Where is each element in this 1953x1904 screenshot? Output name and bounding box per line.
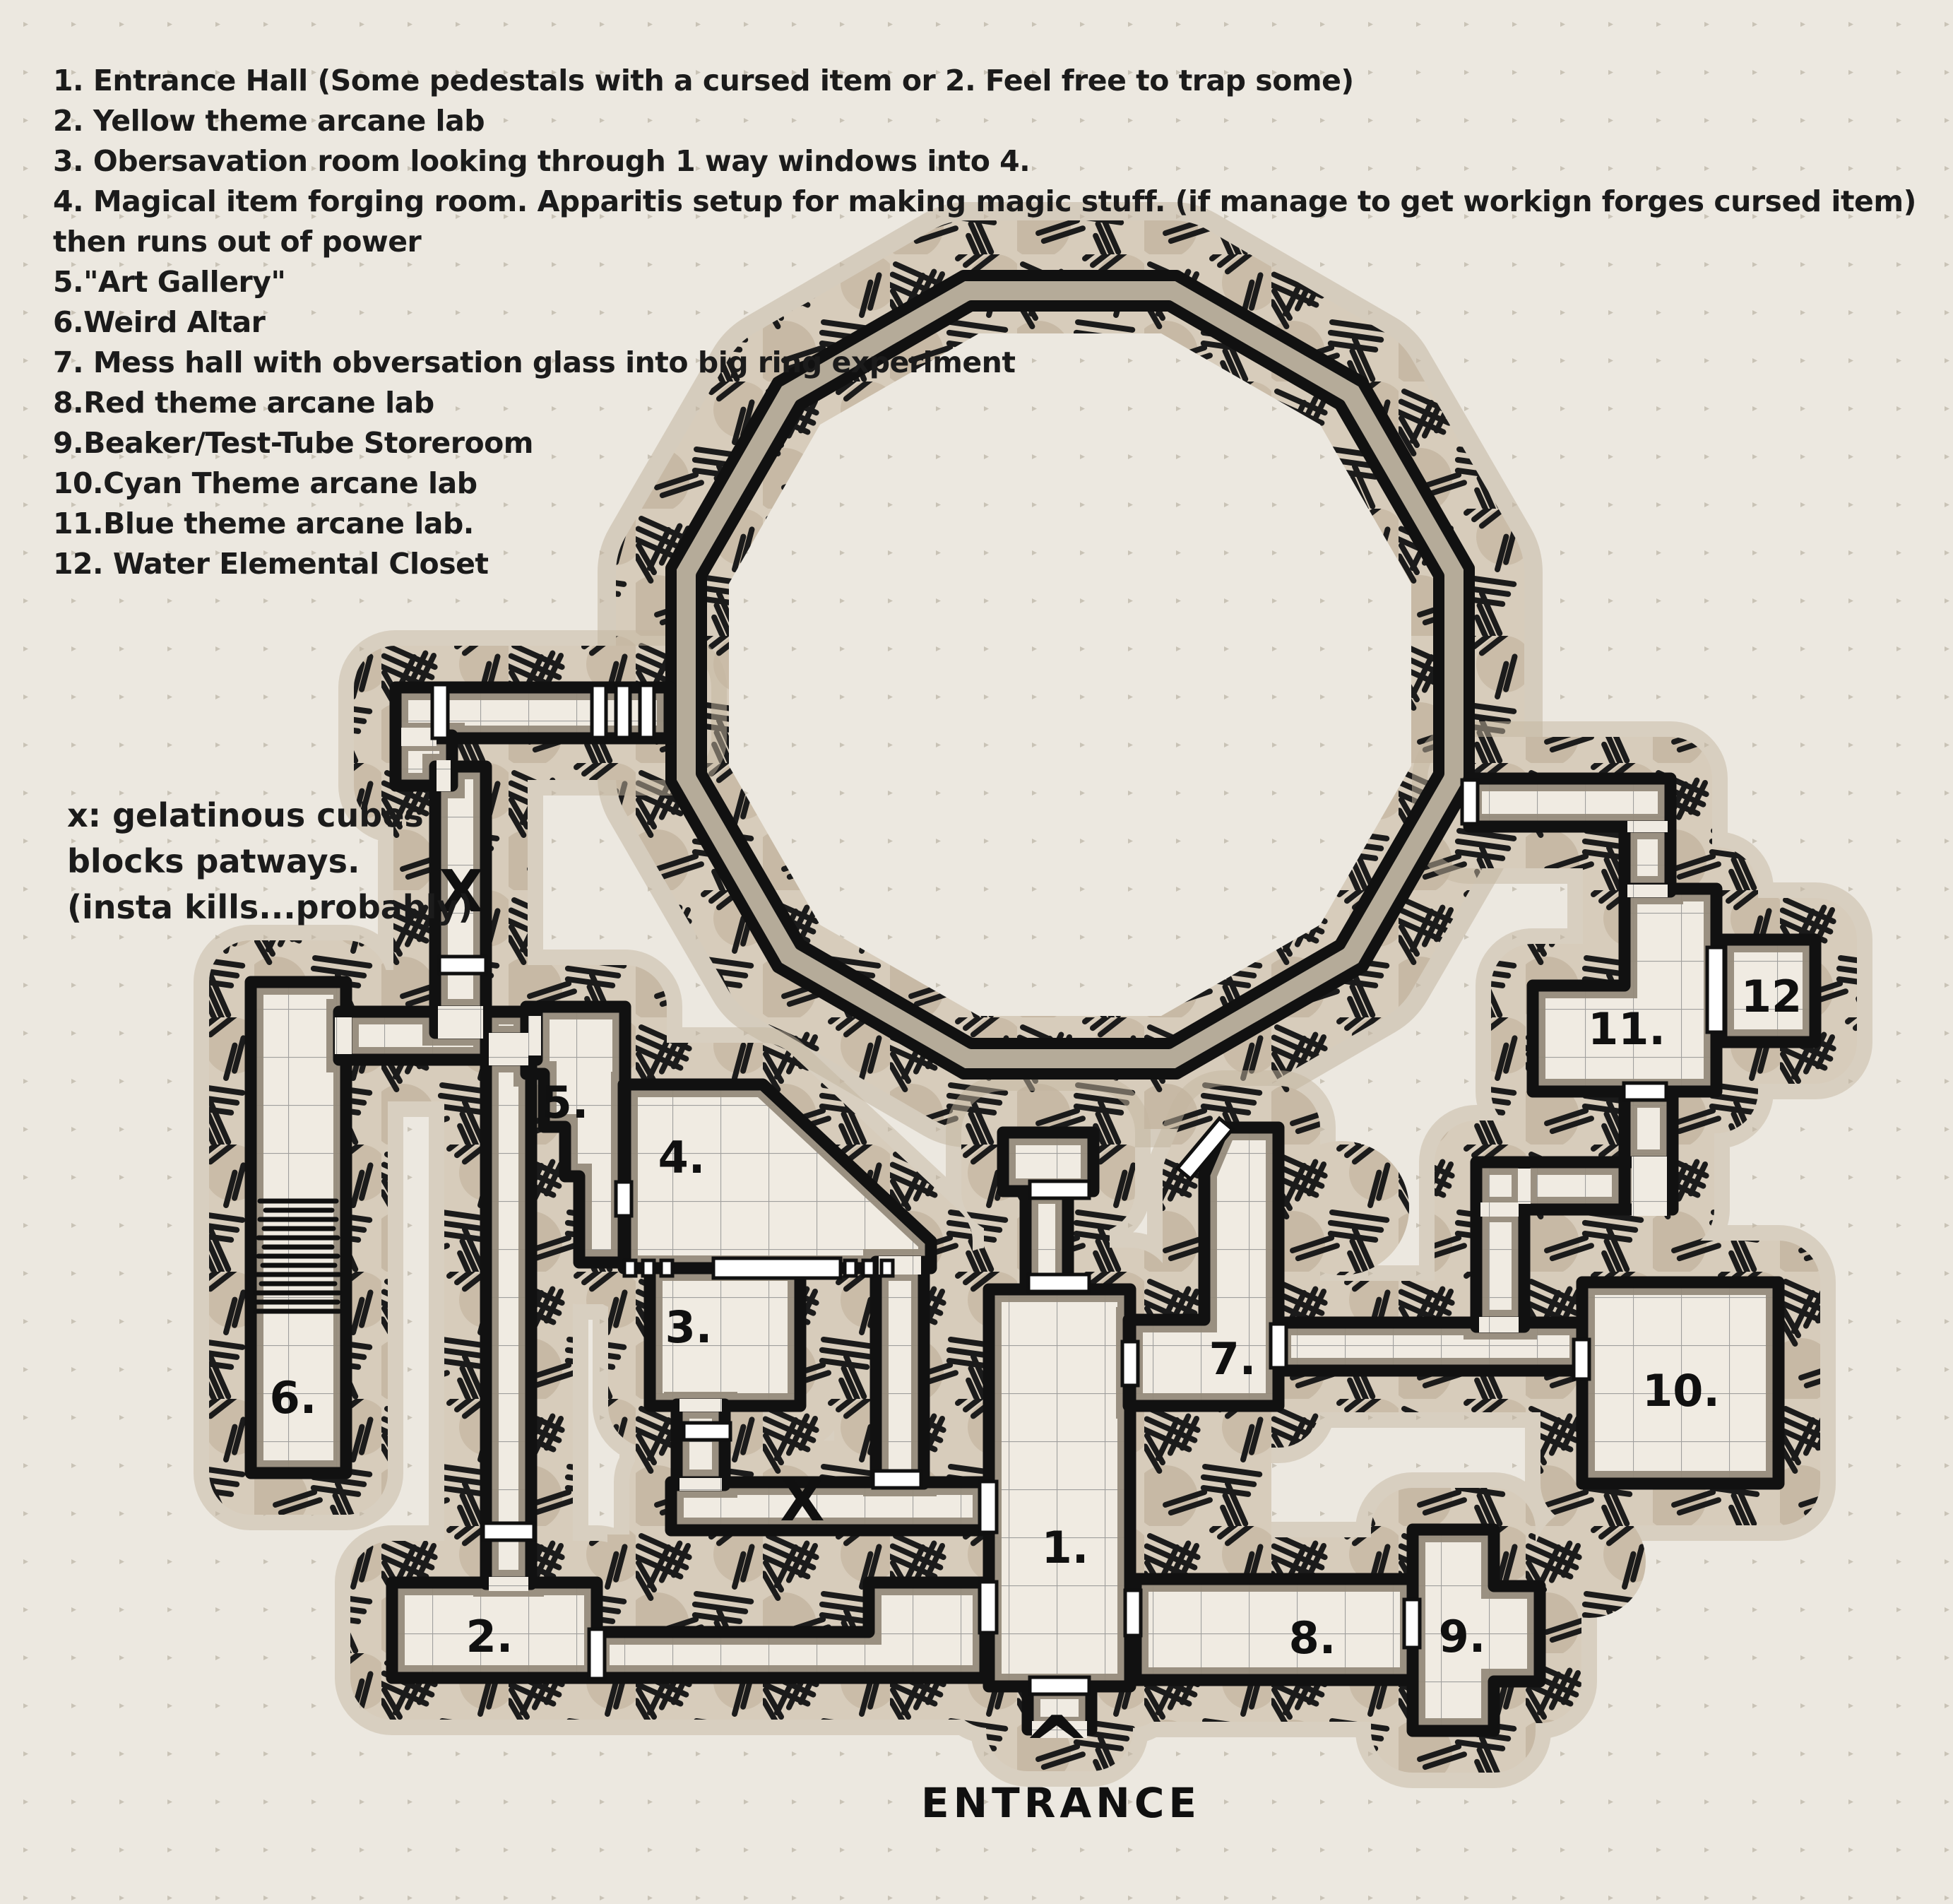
door-icon: [483, 1523, 534, 1540]
door-icon: [432, 685, 448, 738]
door-icon: [1030, 1181, 1089, 1198]
gelatinous-cube-note: x: gelatinous cubes blocks patways. (ins…: [67, 793, 473, 930]
door-icon: [873, 1471, 921, 1488]
door-icon: [980, 1582, 997, 1633]
door-icon: [980, 1482, 997, 1532]
legend-line: 11.Blue theme arcane lab.: [53, 504, 1916, 544]
one-way-windows-icon: [624, 1258, 893, 1278]
door-icon: [1707, 947, 1724, 1032]
legend-line: 10.Cyan Theme arcane lab: [53, 463, 1916, 504]
room-9-label: 9.: [1439, 1611, 1486, 1662]
door-icon: [1404, 1600, 1420, 1648]
door-icon: [1574, 1340, 1589, 1379]
door-icon: [439, 957, 486, 974]
legend: 1. Entrance Hall (Some pedestals with a …: [53, 61, 1916, 584]
door-icon: [1624, 1083, 1666, 1100]
room-2-label: 2.: [466, 1611, 514, 1662]
room-6-label: 6.: [270, 1372, 317, 1424]
legend-line: 2. Yellow theme arcane lab: [53, 101, 1916, 141]
door-icon: [1030, 1677, 1089, 1694]
legend-line: 3. Obersavation room looking through 1 w…: [53, 141, 1916, 182]
legend-line: 8.Red theme arcane lab: [53, 383, 1916, 423]
room-12-label: 12: [1741, 971, 1802, 1022]
legend-line: 6.Weird Altar: [53, 302, 1916, 343]
room-11-label: 11.: [1588, 1003, 1666, 1055]
door-icon: [640, 685, 654, 738]
legend-line: 7. Mess hall with obversation glass into…: [53, 343, 1916, 383]
legend-line: 4. Magical item forging room. Apparitis …: [53, 182, 1916, 222]
room-5-label: 5.: [542, 1077, 589, 1128]
legend-line: 12. Water Elemental Closet: [53, 544, 1916, 584]
note-line: blocks patways.: [67, 839, 473, 885]
door-icon: [1271, 1324, 1286, 1368]
room-7-label: 7.: [1209, 1333, 1257, 1385]
room-4-label: 4.: [658, 1132, 706, 1183]
note-line: x: gelatinous cubes: [67, 793, 473, 839]
note-line: (insta kills...probably): [67, 885, 473, 930]
legend-line: 5."Art Gallery": [53, 262, 1916, 302]
room-8-label: 8.: [1289, 1612, 1336, 1664]
x-marker-2: X: [780, 1467, 824, 1535]
legend-line: then runs out of power: [53, 222, 1916, 262]
door-icon: [1462, 780, 1478, 824]
altar-icon: [256, 1201, 339, 1311]
legend-line: 1. Entrance Hall (Some pedestals with a …: [53, 61, 1916, 101]
room-3-label: 3.: [665, 1301, 713, 1353]
door-icon: [616, 685, 630, 738]
room-1-label: 1.: [1042, 1522, 1089, 1573]
legend-line: 9.Beaker/Test-Tube Storeroom: [53, 423, 1916, 463]
door-icon: [616, 1182, 631, 1216]
room-10-label: 10.: [1642, 1365, 1720, 1417]
door-icon: [684, 1423, 730, 1440]
door-icon: [1125, 1590, 1141, 1636]
door-icon: [589, 1629, 605, 1679]
door-icon: [592, 685, 606, 738]
door-icon: [1028, 1275, 1089, 1291]
door-icon: [1122, 1342, 1138, 1385]
entrance-label: ENTRANCE: [921, 1779, 1201, 1827]
